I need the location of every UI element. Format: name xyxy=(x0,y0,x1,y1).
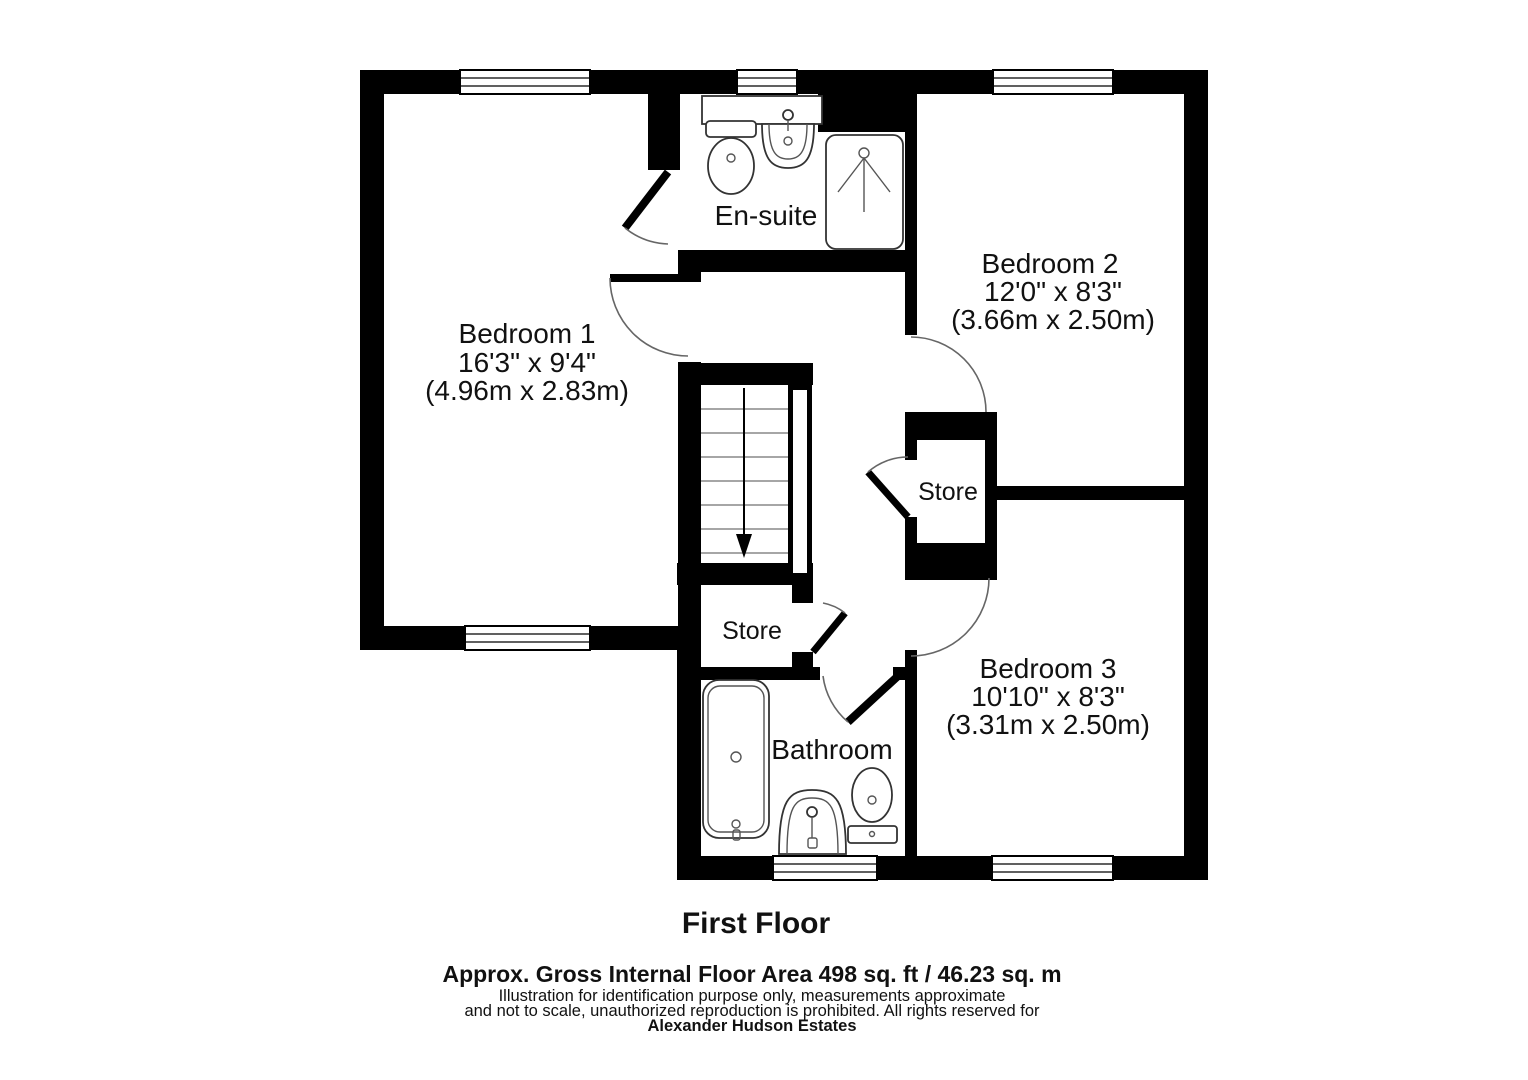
floor-area-text: Approx. Gross Internal Floor Area 498 sq… xyxy=(442,961,1061,987)
stair-rail-inner xyxy=(793,390,807,573)
store-left-label: Store xyxy=(722,617,782,645)
bathroom-door xyxy=(823,676,898,722)
bathroom-left-wall xyxy=(677,626,701,880)
store-center-top-wall xyxy=(905,412,997,440)
bedroom2-bedroom3-divider xyxy=(985,486,1208,500)
store-center-left-stub-bottom xyxy=(905,517,917,543)
store-left-door xyxy=(813,603,845,652)
ensuite-label: En-suite xyxy=(715,200,818,231)
stair-direction-arrow xyxy=(736,534,752,558)
bedroom3-dims-imperial: 10'10" x 8'3" xyxy=(971,681,1125,712)
staircase xyxy=(701,385,812,578)
bedroom1-label: Bedroom 1 xyxy=(459,318,596,349)
bathroom-label: Bathroom xyxy=(771,734,892,765)
bedroom2-window xyxy=(993,70,1113,94)
bedroom1-ensuite-divider xyxy=(648,94,680,170)
bedroom1-top-window xyxy=(460,70,590,94)
bathroom-bedroom3-wall xyxy=(905,650,917,856)
sink-bathroom xyxy=(779,790,846,854)
wall-chimney-block xyxy=(818,94,917,132)
store-center-bottom-wall xyxy=(905,543,997,580)
outer-wall-bottom xyxy=(677,856,1208,880)
bedroom1-bottom-window xyxy=(465,626,590,650)
store-left-right-stub-top xyxy=(792,585,813,603)
bathroom-window xyxy=(773,856,877,880)
store-center-label: Store xyxy=(918,478,978,506)
bedroom2-door xyxy=(911,337,986,412)
floorplan-drawing: Bedroom 1 16'3" x 9'4" (4.96m x 2.83m) E… xyxy=(0,0,1528,1080)
ensuite-window xyxy=(737,70,797,94)
bedroom3-label: Bedroom 3 xyxy=(980,653,1117,684)
bedroom2-dims-imperial: 12'0" x 8'3" xyxy=(984,276,1122,307)
bedroom3-window xyxy=(992,856,1113,880)
vanity-counter xyxy=(702,96,822,124)
footer: First Floor Approx. Gross Internal Floor… xyxy=(442,907,1061,1035)
bedroom1-dims-metric: (4.96m x 2.83m) xyxy=(425,375,629,406)
bedroom3-dims-metric: (3.31m x 2.50m) xyxy=(946,709,1150,740)
toilet-bathroom xyxy=(848,768,897,843)
stair-head-wall xyxy=(693,363,813,385)
outer-wall-left xyxy=(360,70,384,650)
floorplan-page: Bedroom 1 16'3" x 9'4" (4.96m x 2.83m) E… xyxy=(0,0,1528,1080)
bedroom2-dims-metric: (3.66m x 2.50m) xyxy=(951,304,1155,335)
shower-ensuite xyxy=(826,135,903,249)
bedroom3-door xyxy=(911,578,989,656)
store-left-right-stub-bottom xyxy=(792,652,813,668)
hall-bedroom2-wall xyxy=(905,132,917,335)
toilet-ensuite xyxy=(706,121,756,194)
outer-wall-right xyxy=(1184,70,1208,880)
store-center-door xyxy=(868,457,908,517)
bedroom1-door xyxy=(610,278,688,356)
bedroom1-dims-imperial: 16'3" x 9'4" xyxy=(458,347,596,378)
ensuite-door xyxy=(625,172,668,244)
bathtub xyxy=(703,680,769,840)
bedroom1-right-wall-lower xyxy=(678,362,701,650)
agency-name: Alexander Hudson Estates xyxy=(647,1017,856,1035)
bedroom2-label: Bedroom 2 xyxy=(982,248,1119,279)
floor-title: First Floor xyxy=(682,907,831,940)
ensuite-bottom-wall xyxy=(690,250,917,272)
